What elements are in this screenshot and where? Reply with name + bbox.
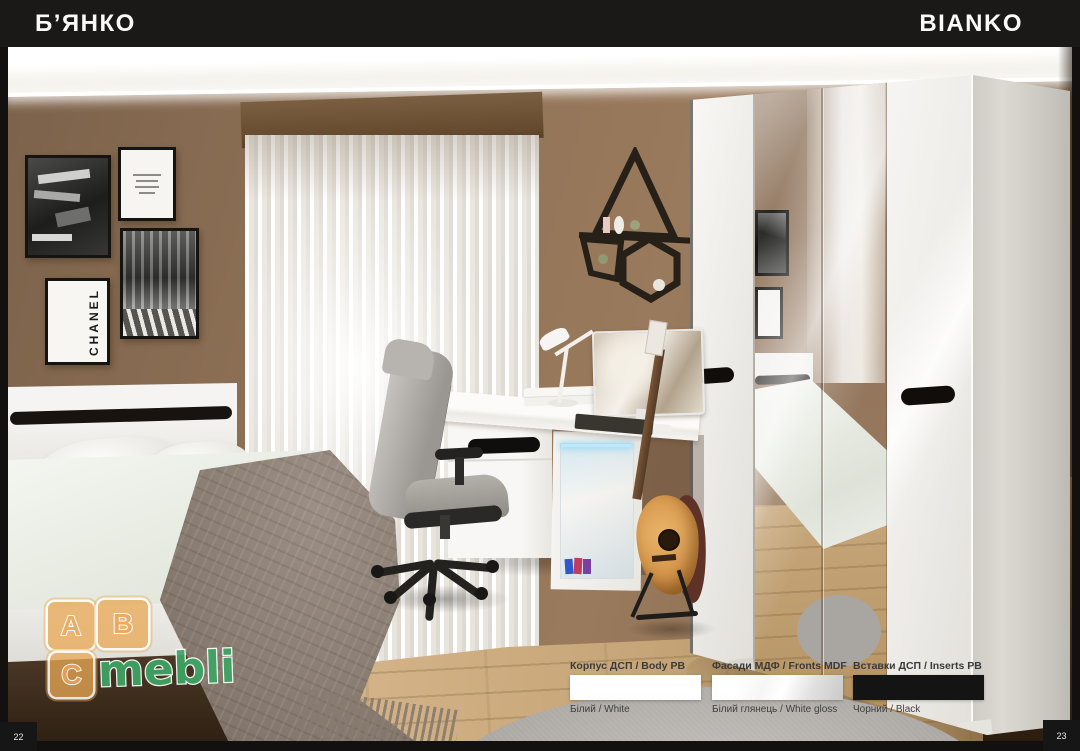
legend-body-value: Білий / White <box>570 704 710 715</box>
legend-fronts-swatch <box>712 675 843 700</box>
quote-text-line <box>133 174 161 176</box>
logo-letter-c: С <box>61 659 81 691</box>
page-number-left: 22 <box>0 722 37 751</box>
wall-frame-street-signs <box>25 155 111 258</box>
chair-caster <box>486 560 499 573</box>
legend-fronts-value: Білий глянець / White gloss <box>712 704 852 715</box>
street-sign <box>38 169 91 184</box>
wall-frame-chanel-poster: CHANEL <box>45 278 110 365</box>
logo-letter-b: В <box>113 608 133 640</box>
product-title-ukrainian: Б’ЯНКО <box>35 10 136 38</box>
logo-block-b: В <box>98 600 148 648</box>
chair-caster <box>384 591 397 604</box>
catalog-page: Б’ЯНКО BIANKO CHANEL <box>0 0 1080 751</box>
wardrobe-side-panel <box>973 75 1070 741</box>
legend-fronts-label: Фасади МДФ / Fronts MDF <box>712 660 852 672</box>
mirror-door-seam <box>821 75 823 737</box>
legend-body-swatch <box>570 675 701 700</box>
logo-block-c: С <box>50 653 93 697</box>
quote-text-line <box>135 186 159 188</box>
chair-caster <box>475 587 488 600</box>
quote-text-line <box>139 192 155 194</box>
page-header: Б’ЯНКО BIANKO <box>0 0 1080 47</box>
logo-word-mebli: mebli <box>97 639 239 704</box>
wall-frame-city-photo <box>120 228 199 339</box>
quote-text-line <box>136 180 158 182</box>
legend-inserts-value: Чорний / Black <box>853 704 993 715</box>
guitar-floor-shadow <box>626 619 716 639</box>
page-number-right: 23 <box>1043 720 1080 751</box>
office-chair-base <box>373 527 503 607</box>
product-title-latin: BIANKO <box>919 10 1023 38</box>
wardrobe-right-door <box>887 75 973 741</box>
shelved-book <box>574 558 583 574</box>
logo-block-a: А <box>48 602 94 649</box>
legend-body-label: Корпус ДСП / Body PB <box>570 660 710 672</box>
chanel-poster-text: CHANEL <box>87 288 101 356</box>
street-sign <box>34 190 81 202</box>
office-chair-armrest-post <box>455 457 464 485</box>
chair-caster <box>423 593 436 606</box>
crosswalk-detail <box>123 309 196 336</box>
street-sign <box>32 234 72 241</box>
cabinet-led-light <box>561 444 631 447</box>
logo-letter-a: А <box>61 610 81 642</box>
guitar-soundhole <box>658 529 680 551</box>
wardrobe <box>690 75 1070 741</box>
wall-frame-quote-poster <box>118 147 176 221</box>
wardrobe-mirror-doors <box>755 75 887 737</box>
legend-inserts-swatch <box>853 675 984 700</box>
wall-shelf-geometric <box>573 147 703 307</box>
shelved-book <box>564 559 573 575</box>
desk-lamp-base <box>548 399 578 407</box>
street-sign <box>55 207 91 228</box>
shelved-book <box>583 559 591 574</box>
legend-inserts-label: Вставки ДСП / Inserts PB <box>853 660 993 672</box>
bedroom-render: CHANEL <box>8 47 1072 741</box>
abc-mebli-logo: А В С mebli <box>38 595 238 725</box>
chair-caster <box>371 565 384 578</box>
